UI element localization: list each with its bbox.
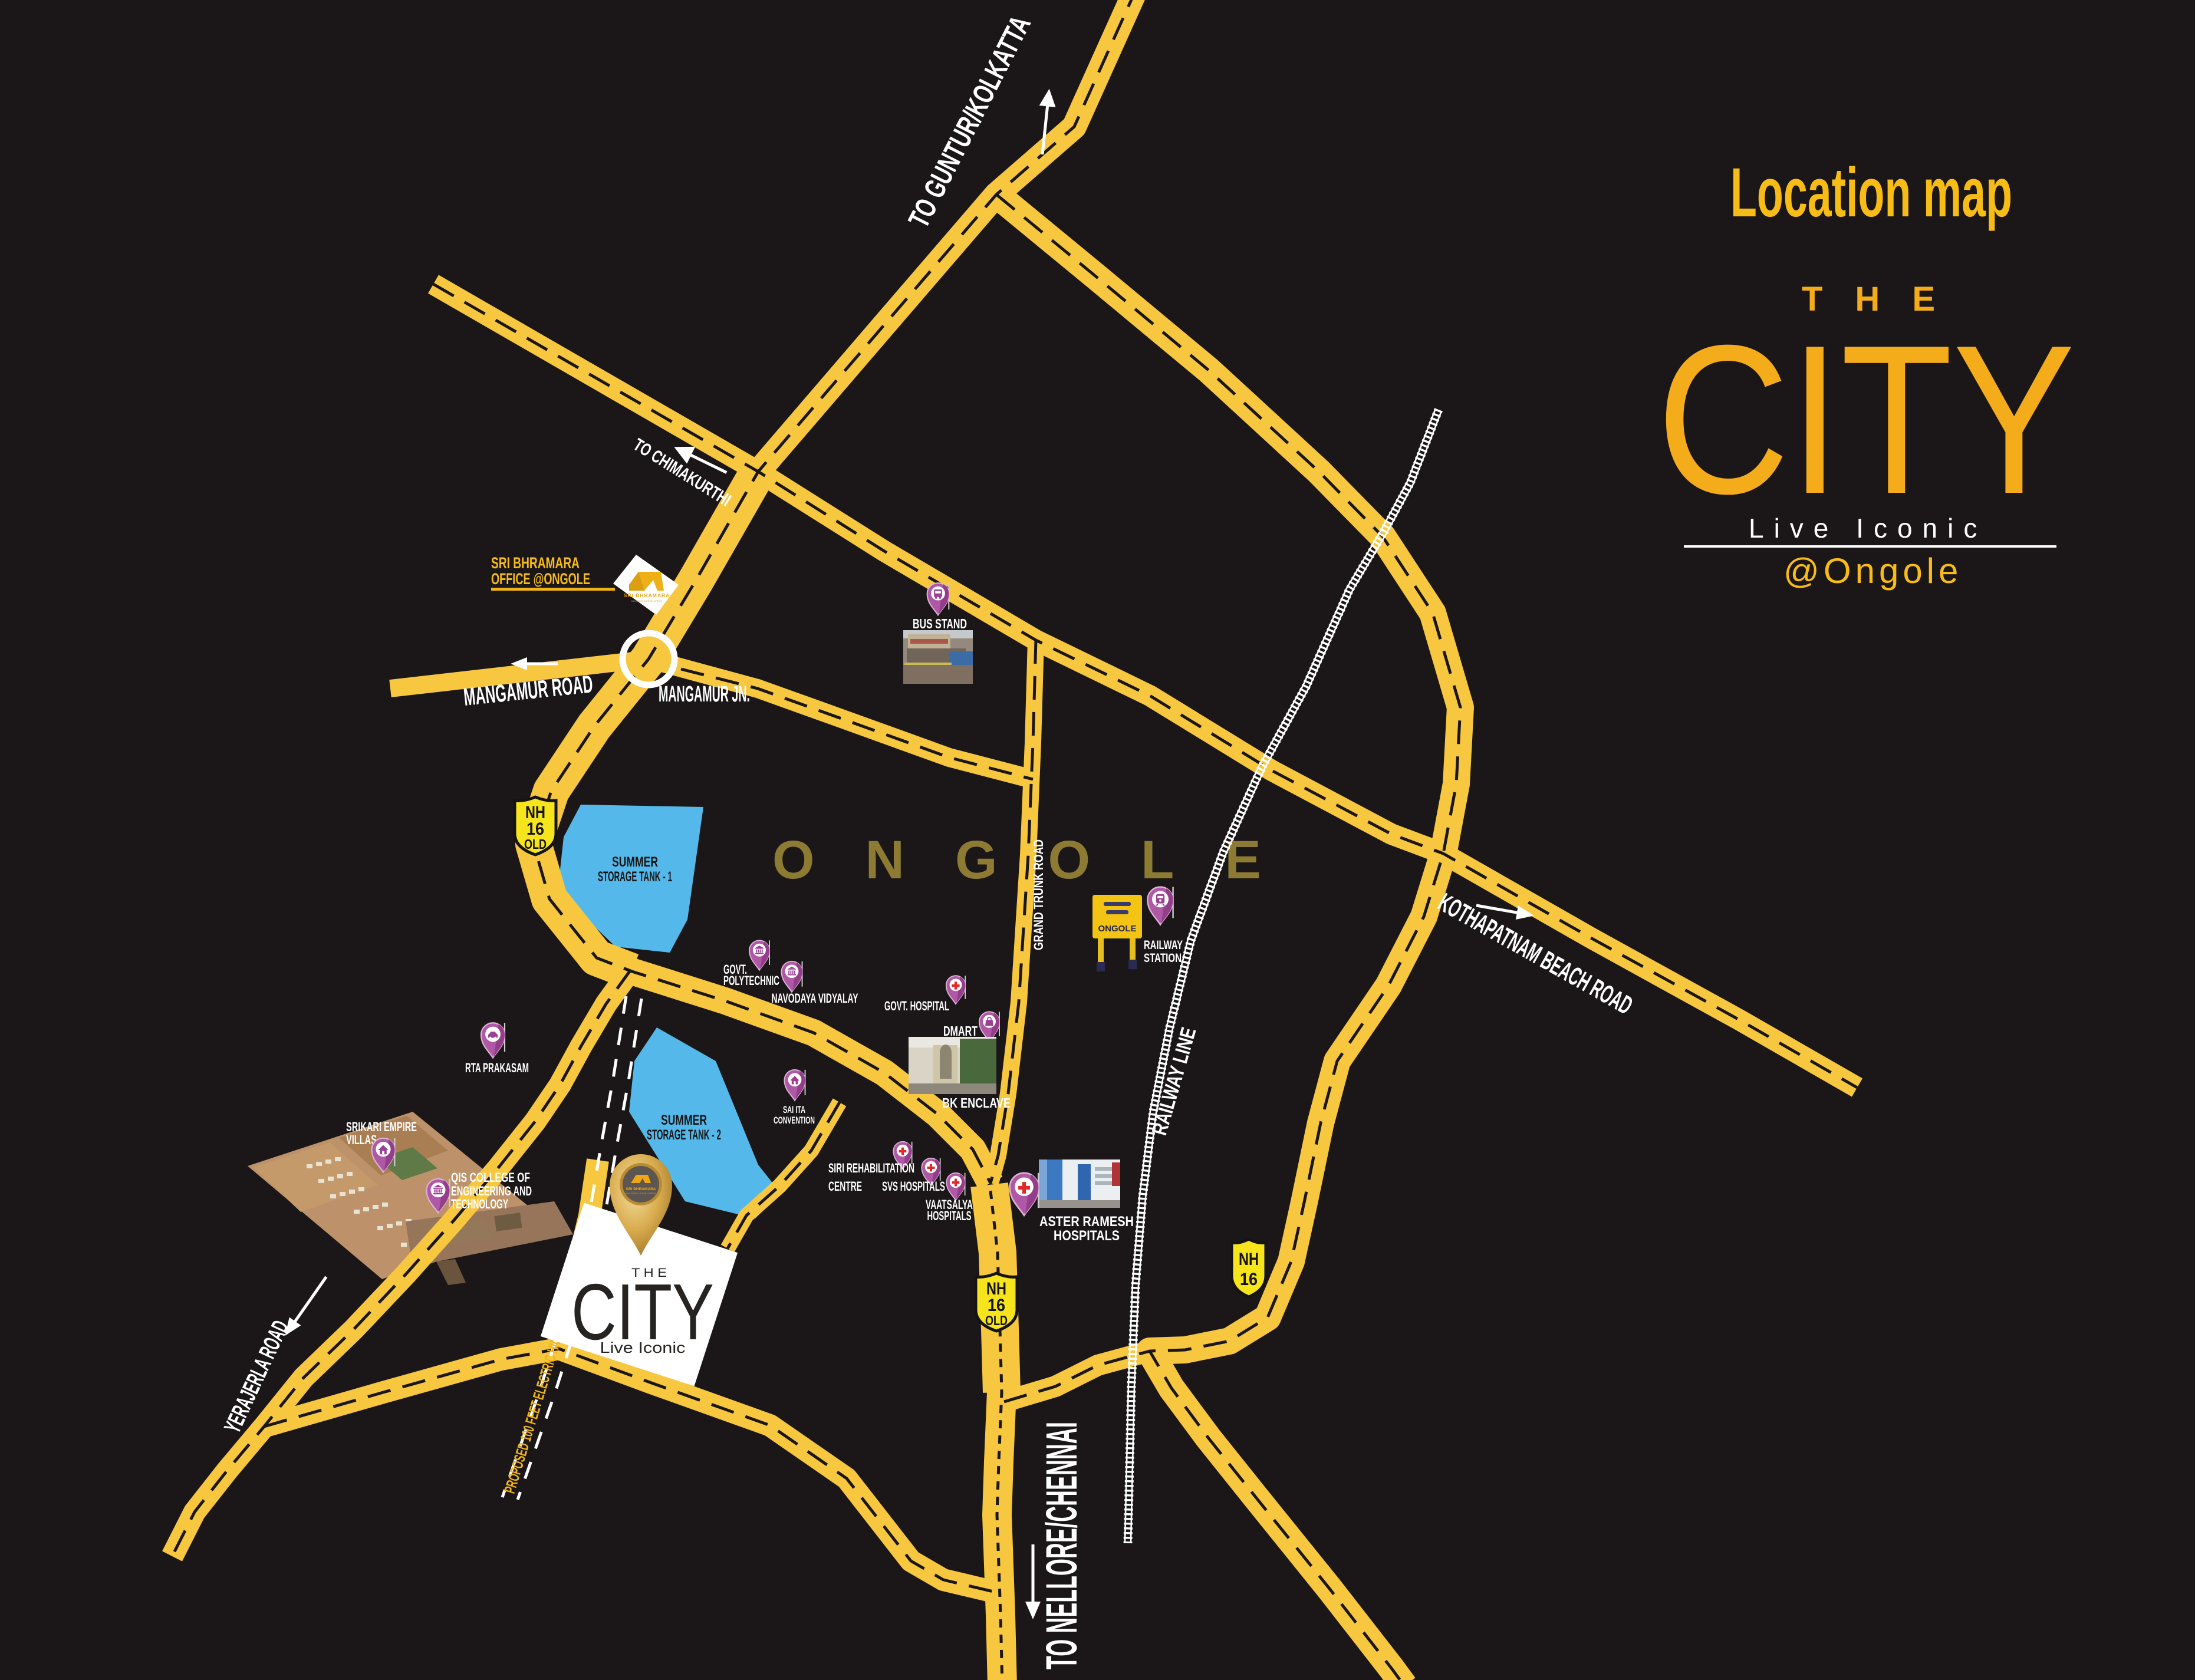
- svg-text:BUILDERS & DEVELOPERS: BUILDERS & DEVELOPERS: [626, 1192, 656, 1195]
- svg-text:BUILDERS & DEVELOPERS: BUILDERS & DEVELOPERS: [631, 599, 662, 602]
- svg-text:16: 16: [1240, 1270, 1258, 1289]
- svg-text:STATION: STATION: [1144, 951, 1182, 965]
- svg-text:MANGAMUR JN.: MANGAMUR JN.: [659, 682, 750, 707]
- svg-text:CONVENTION: CONVENTION: [774, 1115, 815, 1126]
- svg-text:@Ongole: @Ongole: [1783, 551, 1962, 591]
- svg-text:OLD: OLD: [985, 1313, 1008, 1328]
- svg-text:NAVODAYA VIDYALAY: NAVODAYA VIDYALAY: [772, 991, 858, 1006]
- svg-text:DMART: DMART: [943, 1023, 978, 1039]
- svg-text:SUMMER: SUMMER: [612, 854, 658, 870]
- svg-text:CITY: CITY: [1657, 301, 2075, 538]
- svg-text:ONGOLE: ONGOLE: [1098, 924, 1136, 934]
- svg-text:SVS HOSPITALS: SVS HOSPITALS: [882, 1179, 945, 1194]
- svg-text:SRI BHRAMARA: SRI BHRAMARA: [624, 592, 670, 598]
- svg-text:POLYTECHNIC: POLYTECHNIC: [723, 973, 779, 988]
- svg-text:SUMMER: SUMMER: [661, 1112, 707, 1128]
- svg-text:SAI ITA: SAI ITA: [783, 1104, 805, 1115]
- svg-text:OFFICE @ONGOLE: OFFICE @ONGOLE: [491, 570, 590, 588]
- svg-text:HOSPITALS: HOSPITALS: [927, 1208, 972, 1223]
- svg-text:RTA PRAKASAM: RTA PRAKASAM: [465, 1060, 529, 1075]
- svg-text:RAILWAY: RAILWAY: [1144, 938, 1183, 952]
- svg-text:BK ENCLAVE: BK ENCLAVE: [942, 1095, 1011, 1111]
- svg-text:CENTRE: CENTRE: [828, 1179, 862, 1194]
- svg-text:SRI BHRAMARA: SRI BHRAMARA: [626, 1187, 656, 1191]
- svg-text:STORAGE TANK - 1: STORAGE TANK - 1: [598, 869, 672, 885]
- svg-text:STORAGE TANK - 2: STORAGE TANK - 2: [647, 1127, 721, 1143]
- svg-text:ASTER RAMESH: ASTER RAMESH: [1039, 1214, 1134, 1230]
- svg-text:GOVT. HOSPITAL: GOVT. HOSPITAL: [884, 999, 949, 1013]
- svg-text:SIRI REHABILITATION: SIRI REHABILITATION: [828, 1161, 914, 1175]
- svg-text:Live Iconic: Live Iconic: [1749, 513, 1987, 543]
- svg-text:Location map: Location map: [1730, 154, 2012, 232]
- svg-text:OLD: OLD: [524, 836, 547, 852]
- svg-text:TO NELLORE/CHENNAI: TO NELLORE/CHENNAI: [1037, 1422, 1086, 1669]
- svg-text:QIS COLLEGE OF: QIS COLLEGE OF: [451, 1170, 530, 1185]
- svg-text:BUS STAND: BUS STAND: [913, 616, 967, 631]
- svg-text:SRI BHRAMARA: SRI BHRAMARA: [491, 554, 580, 572]
- svg-text:Live Iconic: Live Iconic: [600, 1339, 686, 1356]
- svg-text:TECHNOLOGY: TECHNOLOGY: [451, 1197, 508, 1211]
- svg-text:HOSPITALS: HOSPITALS: [1054, 1228, 1120, 1244]
- svg-text:GRAND TRUNK ROAD: GRAND TRUNK ROAD: [1031, 839, 1046, 950]
- svg-text:NH: NH: [1239, 1250, 1259, 1269]
